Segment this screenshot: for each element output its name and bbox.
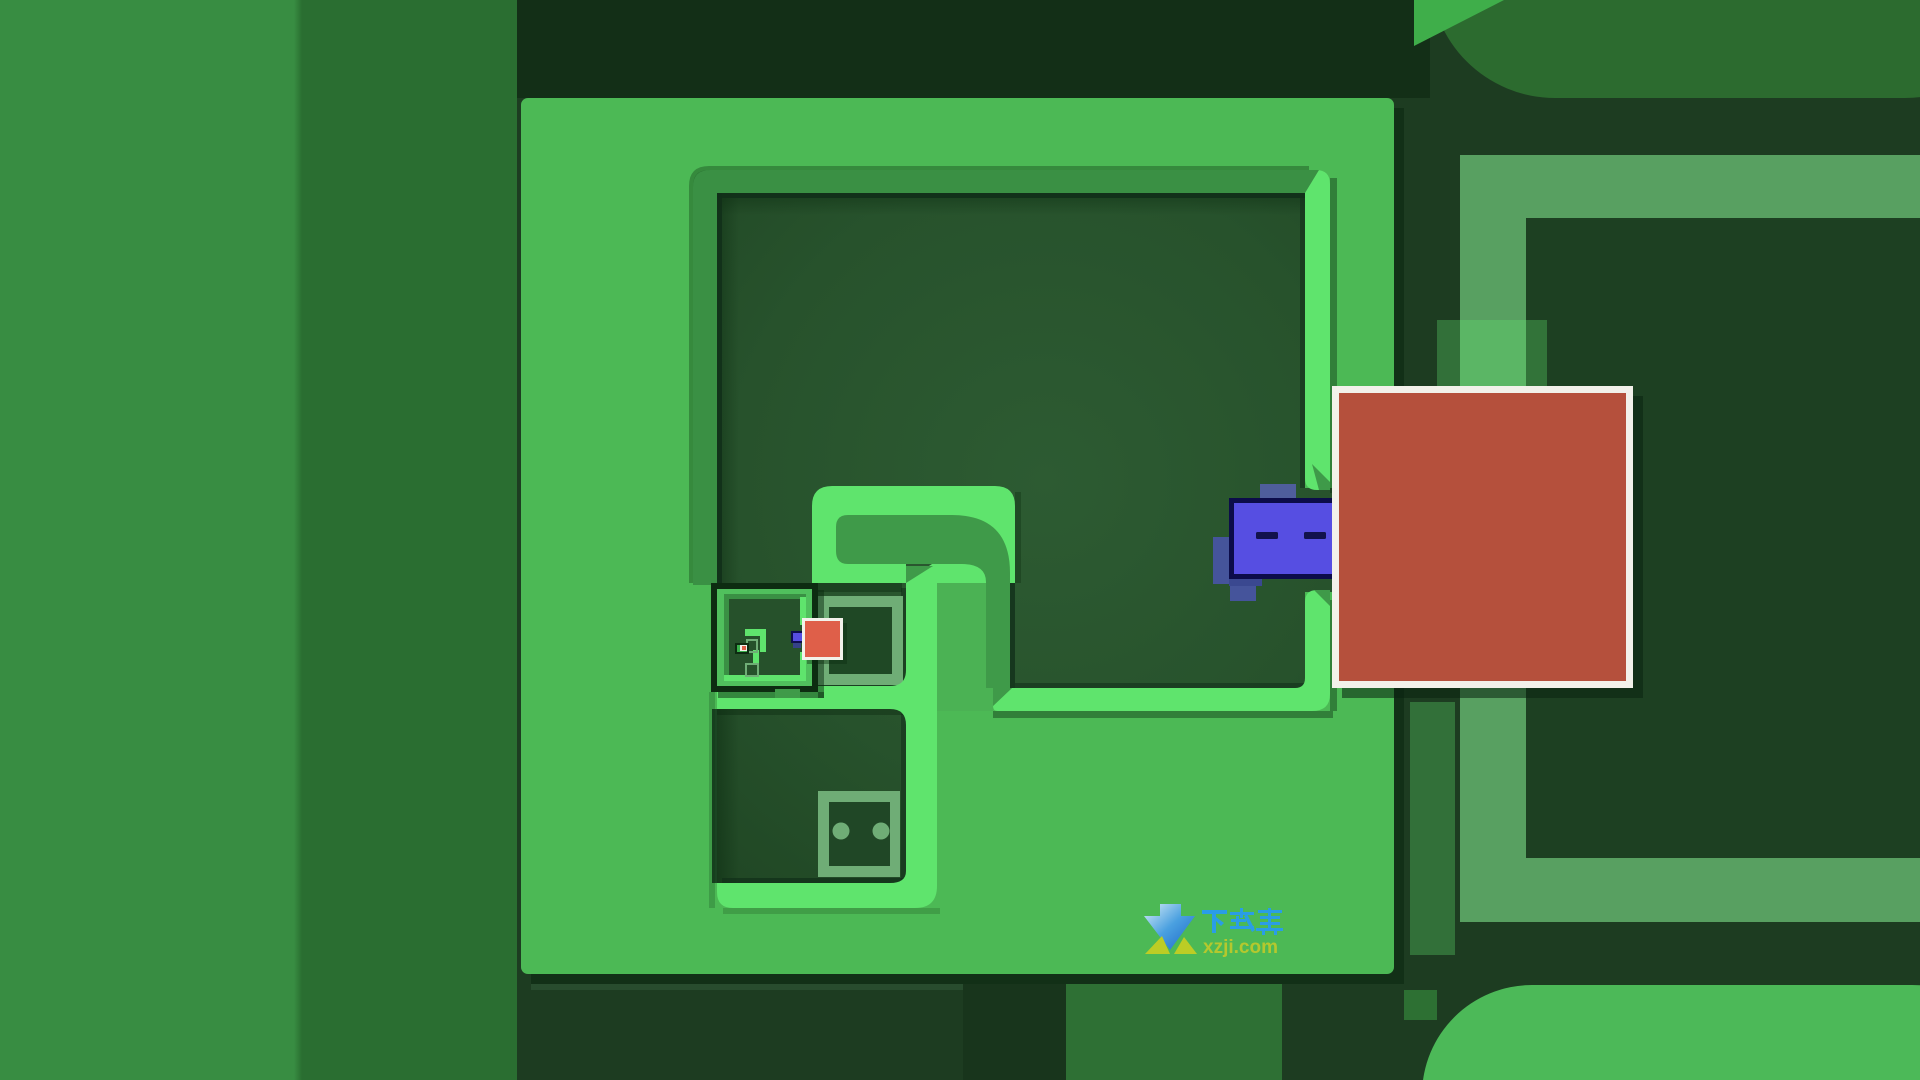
svg-text:xzji.com: xzji.com (1203, 937, 1278, 958)
